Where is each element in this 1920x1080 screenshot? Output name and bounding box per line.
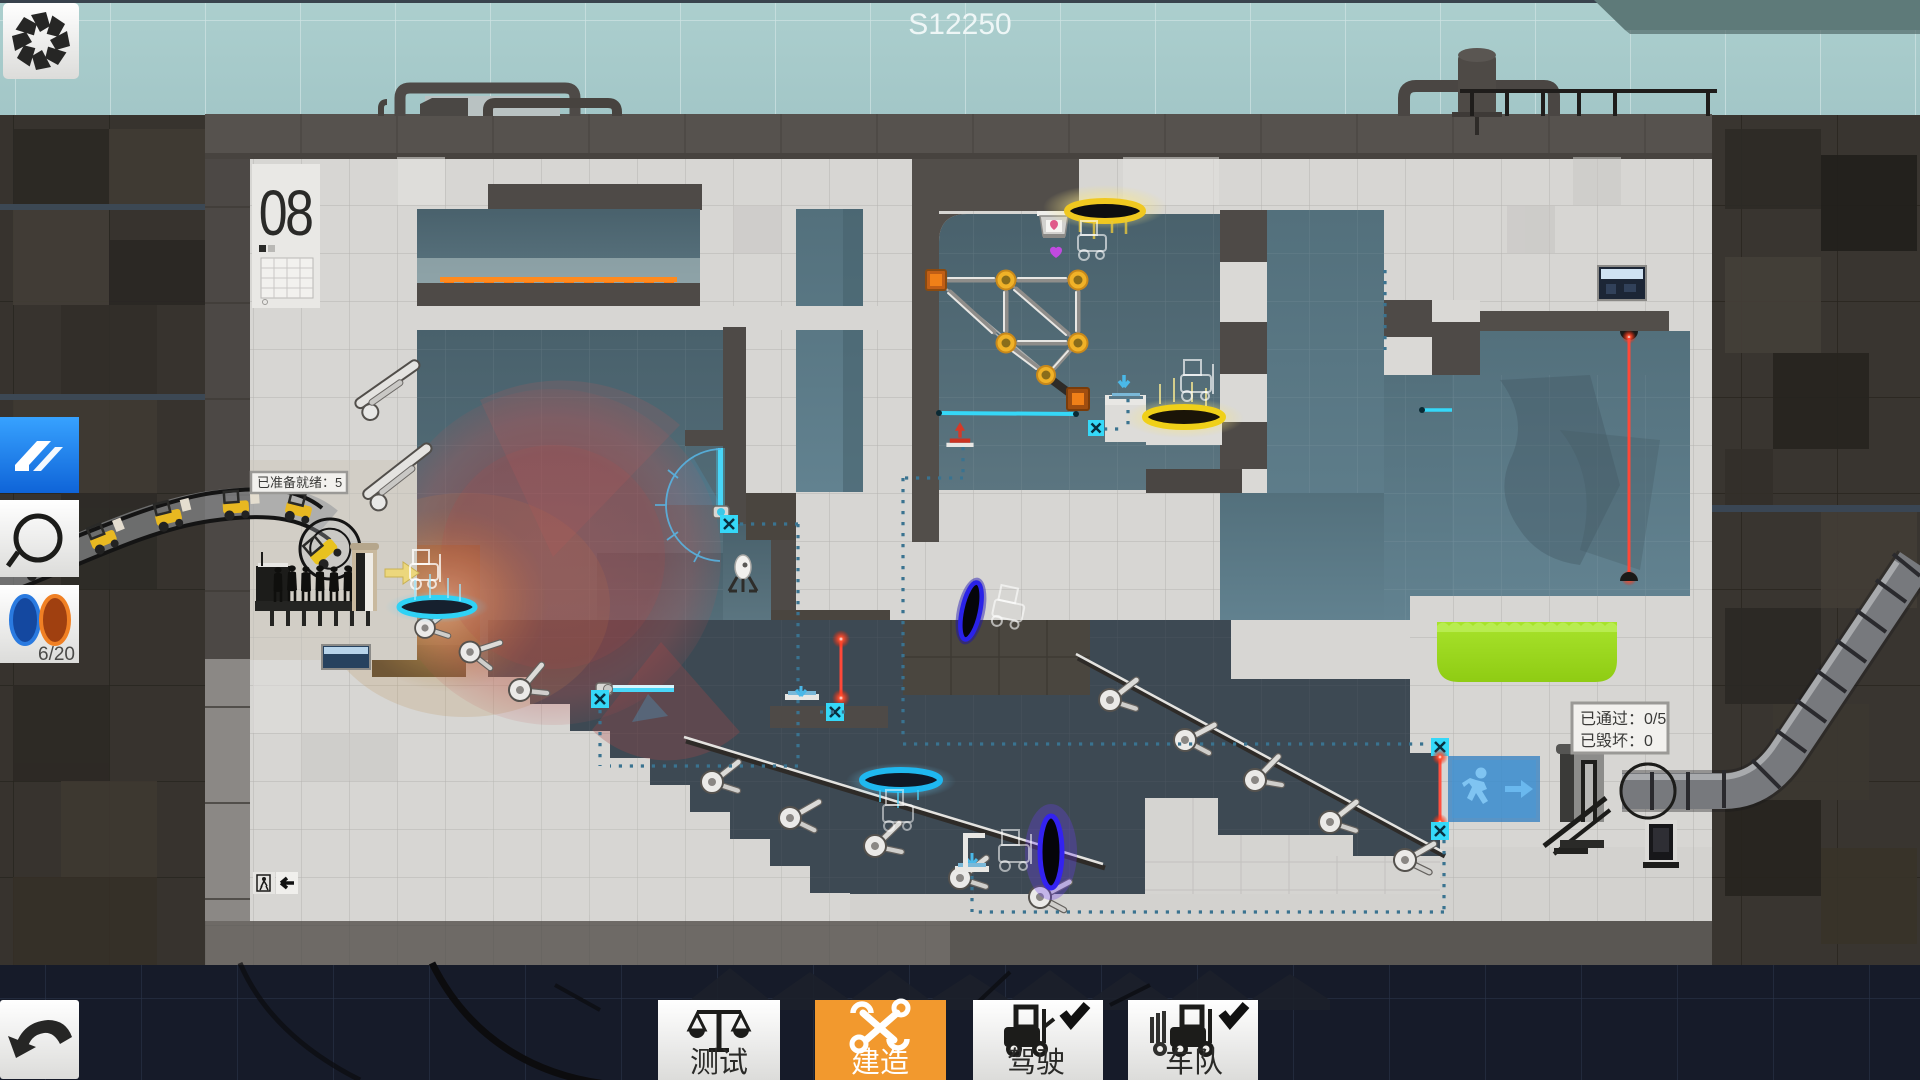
svg-text:08: 08	[259, 178, 312, 249]
svg-text:S12250: S12250	[908, 8, 1011, 41]
svg-text:6/20: 6/20	[38, 644, 75, 665]
svg-text:车队: 车队	[1165, 1046, 1223, 1079]
svg-text:已准备就绪：5: 已准备就绪：5	[257, 475, 342, 490]
svg-text:建造: 建造	[851, 1046, 909, 1079]
svg-text:测试: 测试	[690, 1046, 748, 1079]
svg-text:驾驶: 驾驶	[1007, 1046, 1065, 1079]
svg-text:已通过：0/5: 已通过：0/5	[1580, 710, 1666, 728]
svg-text:已毁坏：0: 已毁坏：0	[1580, 732, 1653, 750]
